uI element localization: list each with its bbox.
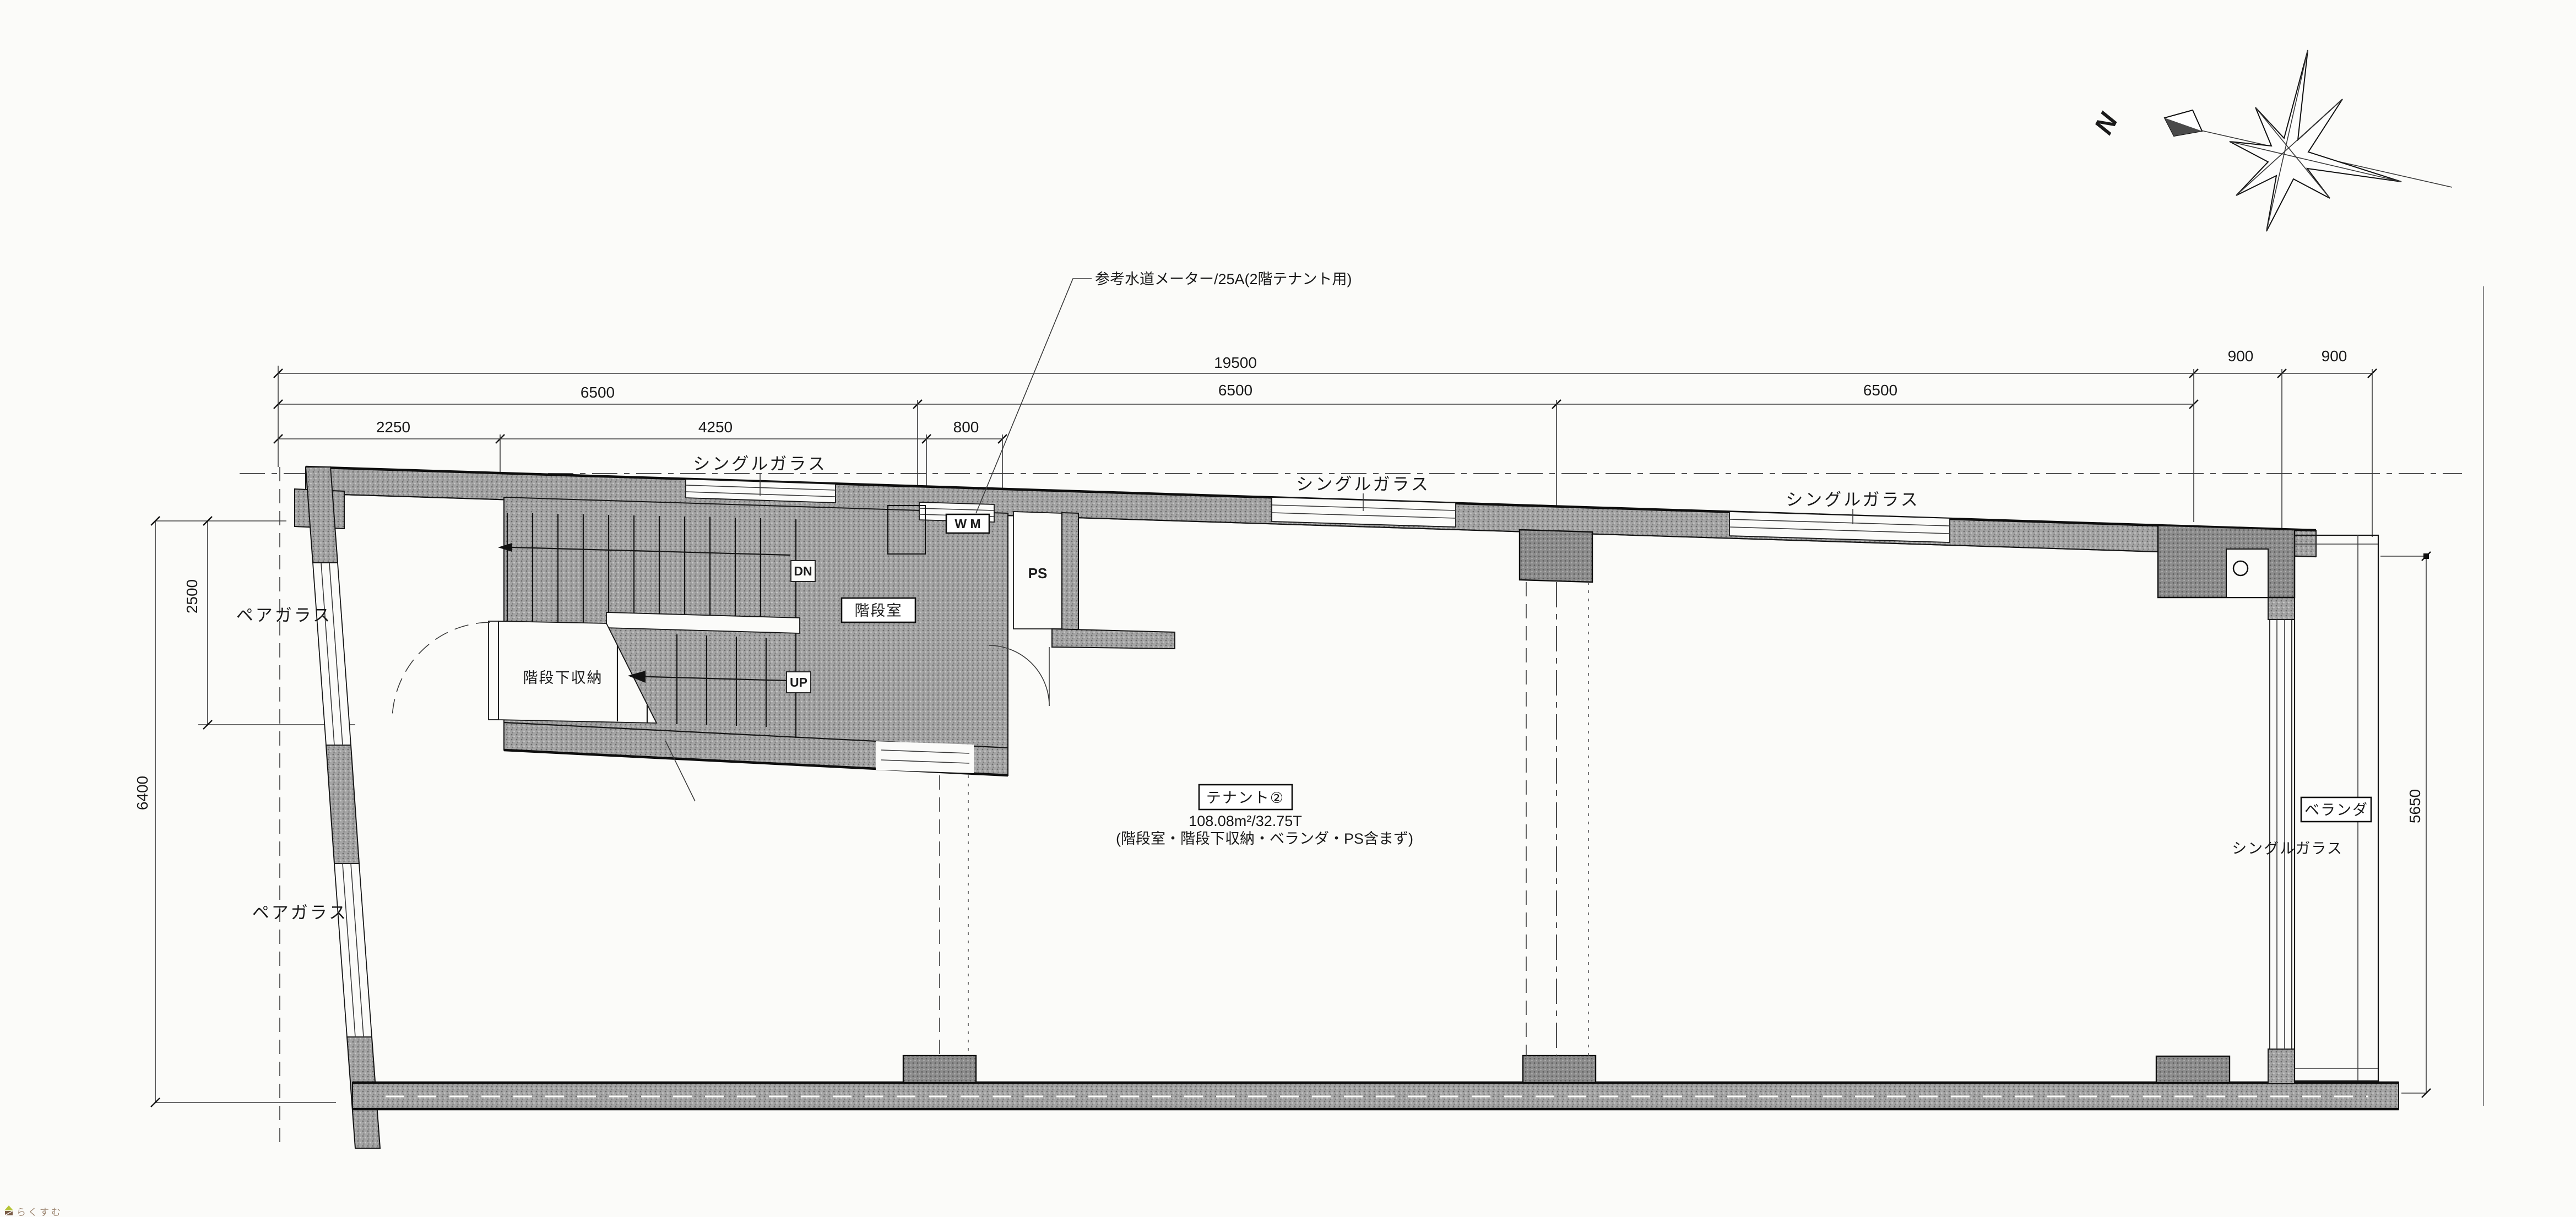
veranda-label: ベランダ	[2304, 802, 2368, 818]
logo-house-roof-icon	[4, 1205, 13, 1210]
stair-room-label: 階段室	[855, 602, 903, 619]
dim-sub-3: 800	[953, 419, 979, 436]
dim-sub-1: 2250	[376, 419, 410, 436]
tenant-note: (階段室・階段下収納・ベランダ・PS含まず)	[1116, 830, 1413, 847]
dim-bay-3: 6500	[1863, 382, 1897, 399]
logo-text: らくすむ	[17, 1207, 63, 1217]
compass-star	[2230, 50, 2401, 231]
up-label: UP	[790, 675, 807, 689]
compass-rose: N	[2089, 50, 2452, 231]
columns	[903, 525, 2295, 1083]
column-bottom-right	[2156, 1056, 2230, 1083]
pair-glass-label-2: ペアガラス	[252, 903, 348, 922]
stair-block: 階段下収納 DN UP 階段室 W M	[392, 479, 1175, 801]
single-glass-label-2: シングルガラス	[1296, 475, 1430, 494]
water-meter-annotation: 参考水道メーター/25A(2階テナント用)	[976, 271, 1352, 513]
pipe-symbol	[2233, 561, 2248, 575]
dim-total-width: 19500	[1214, 354, 1257, 371]
tenant-area: 108.08m²/32.75T	[1189, 813, 1302, 829]
dim-left-upper: 2500	[183, 579, 200, 613]
ps-label: PS	[1028, 565, 1048, 582]
dn-label: DN	[794, 564, 812, 578]
floor-plan-drawing: 19500 900 900 6500 6500 6500 2250 4250 8…	[0, 0, 2576, 1217]
dim-bay-2: 6500	[1218, 382, 1252, 399]
column-top-mid	[1520, 530, 1592, 582]
north-label: N	[2089, 108, 2124, 139]
dim-right-height: 5650	[2406, 789, 2423, 823]
under-stair-storage-label: 階段下収納	[523, 670, 603, 686]
tenant-name: テナント②	[1206, 790, 1284, 806]
dim-veranda-2: 900	[2322, 347, 2347, 365]
dimension-lines: 19500 900 900 6500 6500 6500 2250 4250 8…	[134, 347, 2431, 1145]
single-glass-label-right: シングルガラス	[2232, 840, 2343, 857]
dim-left-total: 6400	[134, 776, 151, 810]
floor-plan-page: 19500 900 900 6500 6500 6500 2250 4250 8…	[0, 0, 2576, 1217]
wm-label: W M	[955, 517, 980, 531]
site-logo: らくすむ	[4, 1205, 63, 1217]
pair-glass-label-1: ペアガラス	[236, 606, 332, 625]
dim-veranda-1: 900	[2228, 347, 2254, 365]
tenant-info: テナント② 108.08m²/32.75T (階段室・階段下収納・ベランダ・PS…	[1116, 785, 1413, 847]
sliding-door-stair-bottom	[876, 741, 974, 773]
column-bottom-left	[903, 1056, 976, 1083]
dim-sub-2: 4250	[698, 419, 733, 436]
single-glass-label-1: シングルガラス	[693, 454, 827, 474]
single-glass-label-3: シングルガラス	[1786, 490, 1919, 509]
dim-bay-1: 6500	[581, 384, 615, 401]
water-meter-text: 参考水道メーター/25A(2階テナント用)	[1095, 271, 1352, 287]
north-arrow-kite	[2165, 110, 2202, 136]
column-bottom-mid	[1523, 1056, 1596, 1083]
